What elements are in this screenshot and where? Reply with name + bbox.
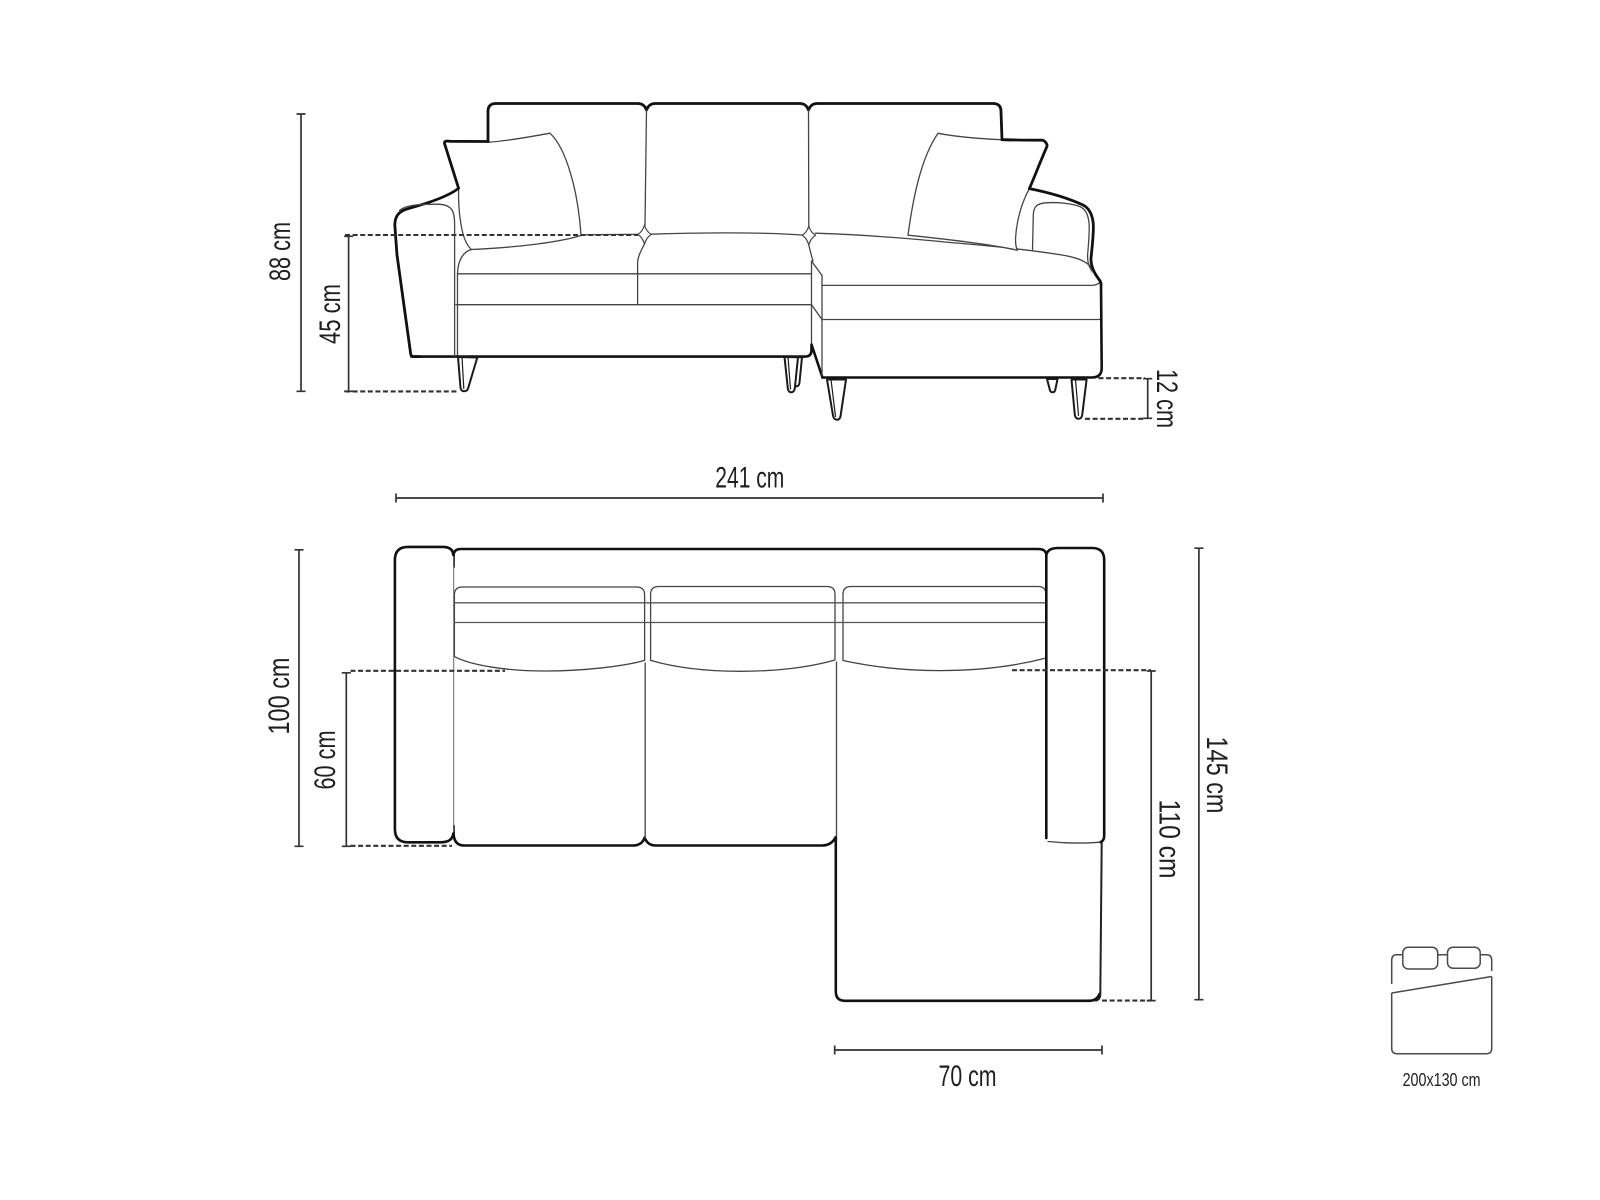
svg-text:241 cm: 241 cm (715, 462, 784, 495)
svg-text:60 cm: 60 cm (309, 731, 342, 790)
svg-text:70 cm: 70 cm (939, 1060, 997, 1093)
svg-text:12 cm: 12 cm (1150, 369, 1183, 428)
svg-text:45 cm: 45 cm (314, 284, 347, 344)
svg-text:145 cm: 145 cm (1200, 737, 1233, 814)
svg-text:88 cm: 88 cm (264, 222, 297, 281)
svg-text:110 cm: 110 cm (1152, 800, 1185, 879)
svg-text:200x130 cm: 200x130 cm (1403, 1069, 1481, 1090)
svg-text:100 cm: 100 cm (263, 658, 296, 735)
